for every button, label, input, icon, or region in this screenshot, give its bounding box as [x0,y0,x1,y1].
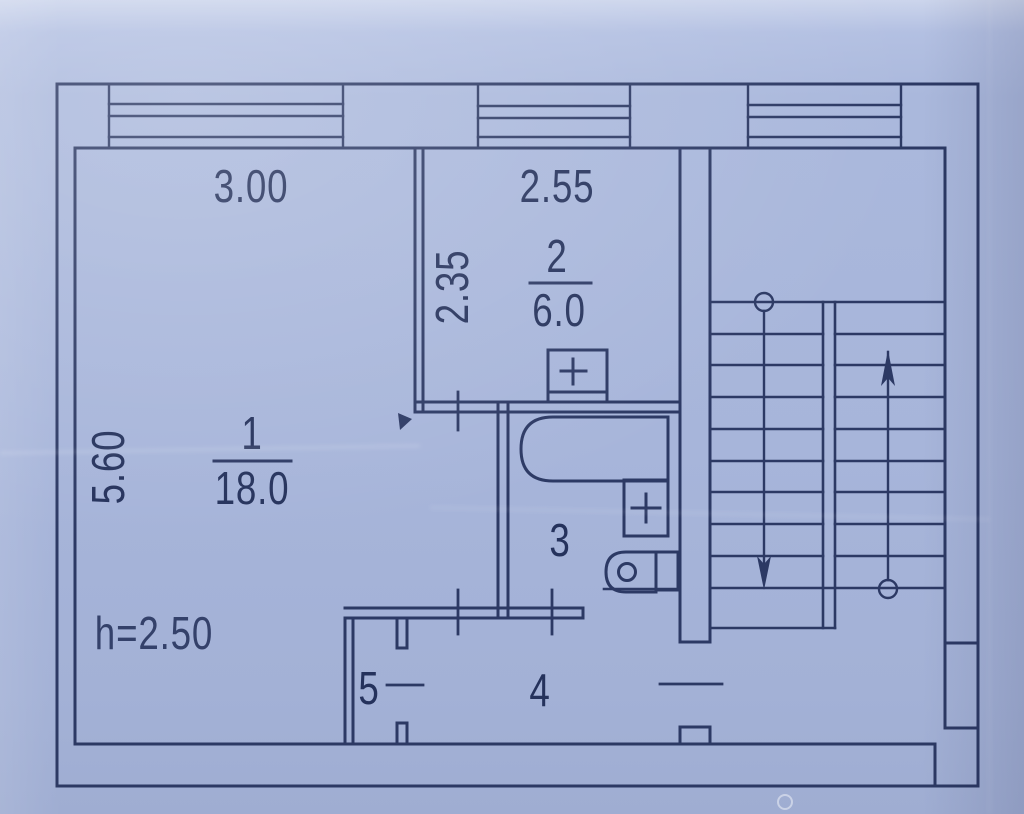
room4-number-label: 4 [529,667,550,713]
kitchen-sink-icon [548,350,607,402]
floor-plan-photo: 3.00 2.55 2.35 5.60 h=2.50 1 18.0 2 6.0 … [0,0,1024,814]
window-kitchen-icon [478,84,630,148]
bathtub-icon [521,417,668,481]
washbasin-icon [624,480,668,536]
room1-number-label: 1 [241,410,262,456]
dim-room2-width-label: 2.55 [520,163,595,209]
exterior-walls [57,84,978,786]
dim-room1-depth-label: 5.60 [85,430,131,505]
interior-walls [345,148,710,744]
room2-area-label: 6.0 [532,287,586,333]
room5-number-label: 5 [358,665,379,711]
dim-room2-depth-label: 2.35 [429,250,475,325]
stair-direction-arrows [755,293,897,598]
floor-plan-drawing [0,0,1024,814]
window-stairwell-icon [748,84,901,148]
fixtures [521,350,678,592]
watermark-circle [778,795,792,809]
ceiling-height-label: h=2.50 [95,610,213,656]
dim-room1-width-label: 3.00 [214,163,289,209]
toilet-icon [606,552,678,592]
kitchen-door-leaf [398,413,412,430]
window-room1-icon [109,84,343,148]
room2-number-label: 2 [546,233,567,279]
staircase [710,293,945,628]
room1-area-label: 18.0 [215,465,290,511]
room3-number-label: 3 [549,517,570,563]
windows [109,84,901,148]
stair-treads-left [710,334,823,556]
